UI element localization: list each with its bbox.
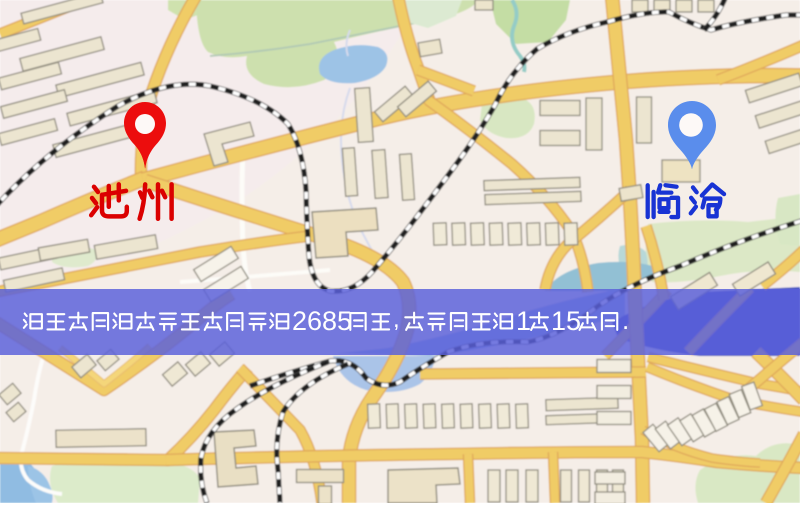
svg-text:15: 15 (551, 306, 581, 336)
svg-text:1: 1 (516, 306, 531, 336)
svg-text:2685: 2685 (292, 306, 352, 336)
svg-text:.: . (622, 305, 629, 335)
svg-text:,: , (393, 306, 400, 333)
